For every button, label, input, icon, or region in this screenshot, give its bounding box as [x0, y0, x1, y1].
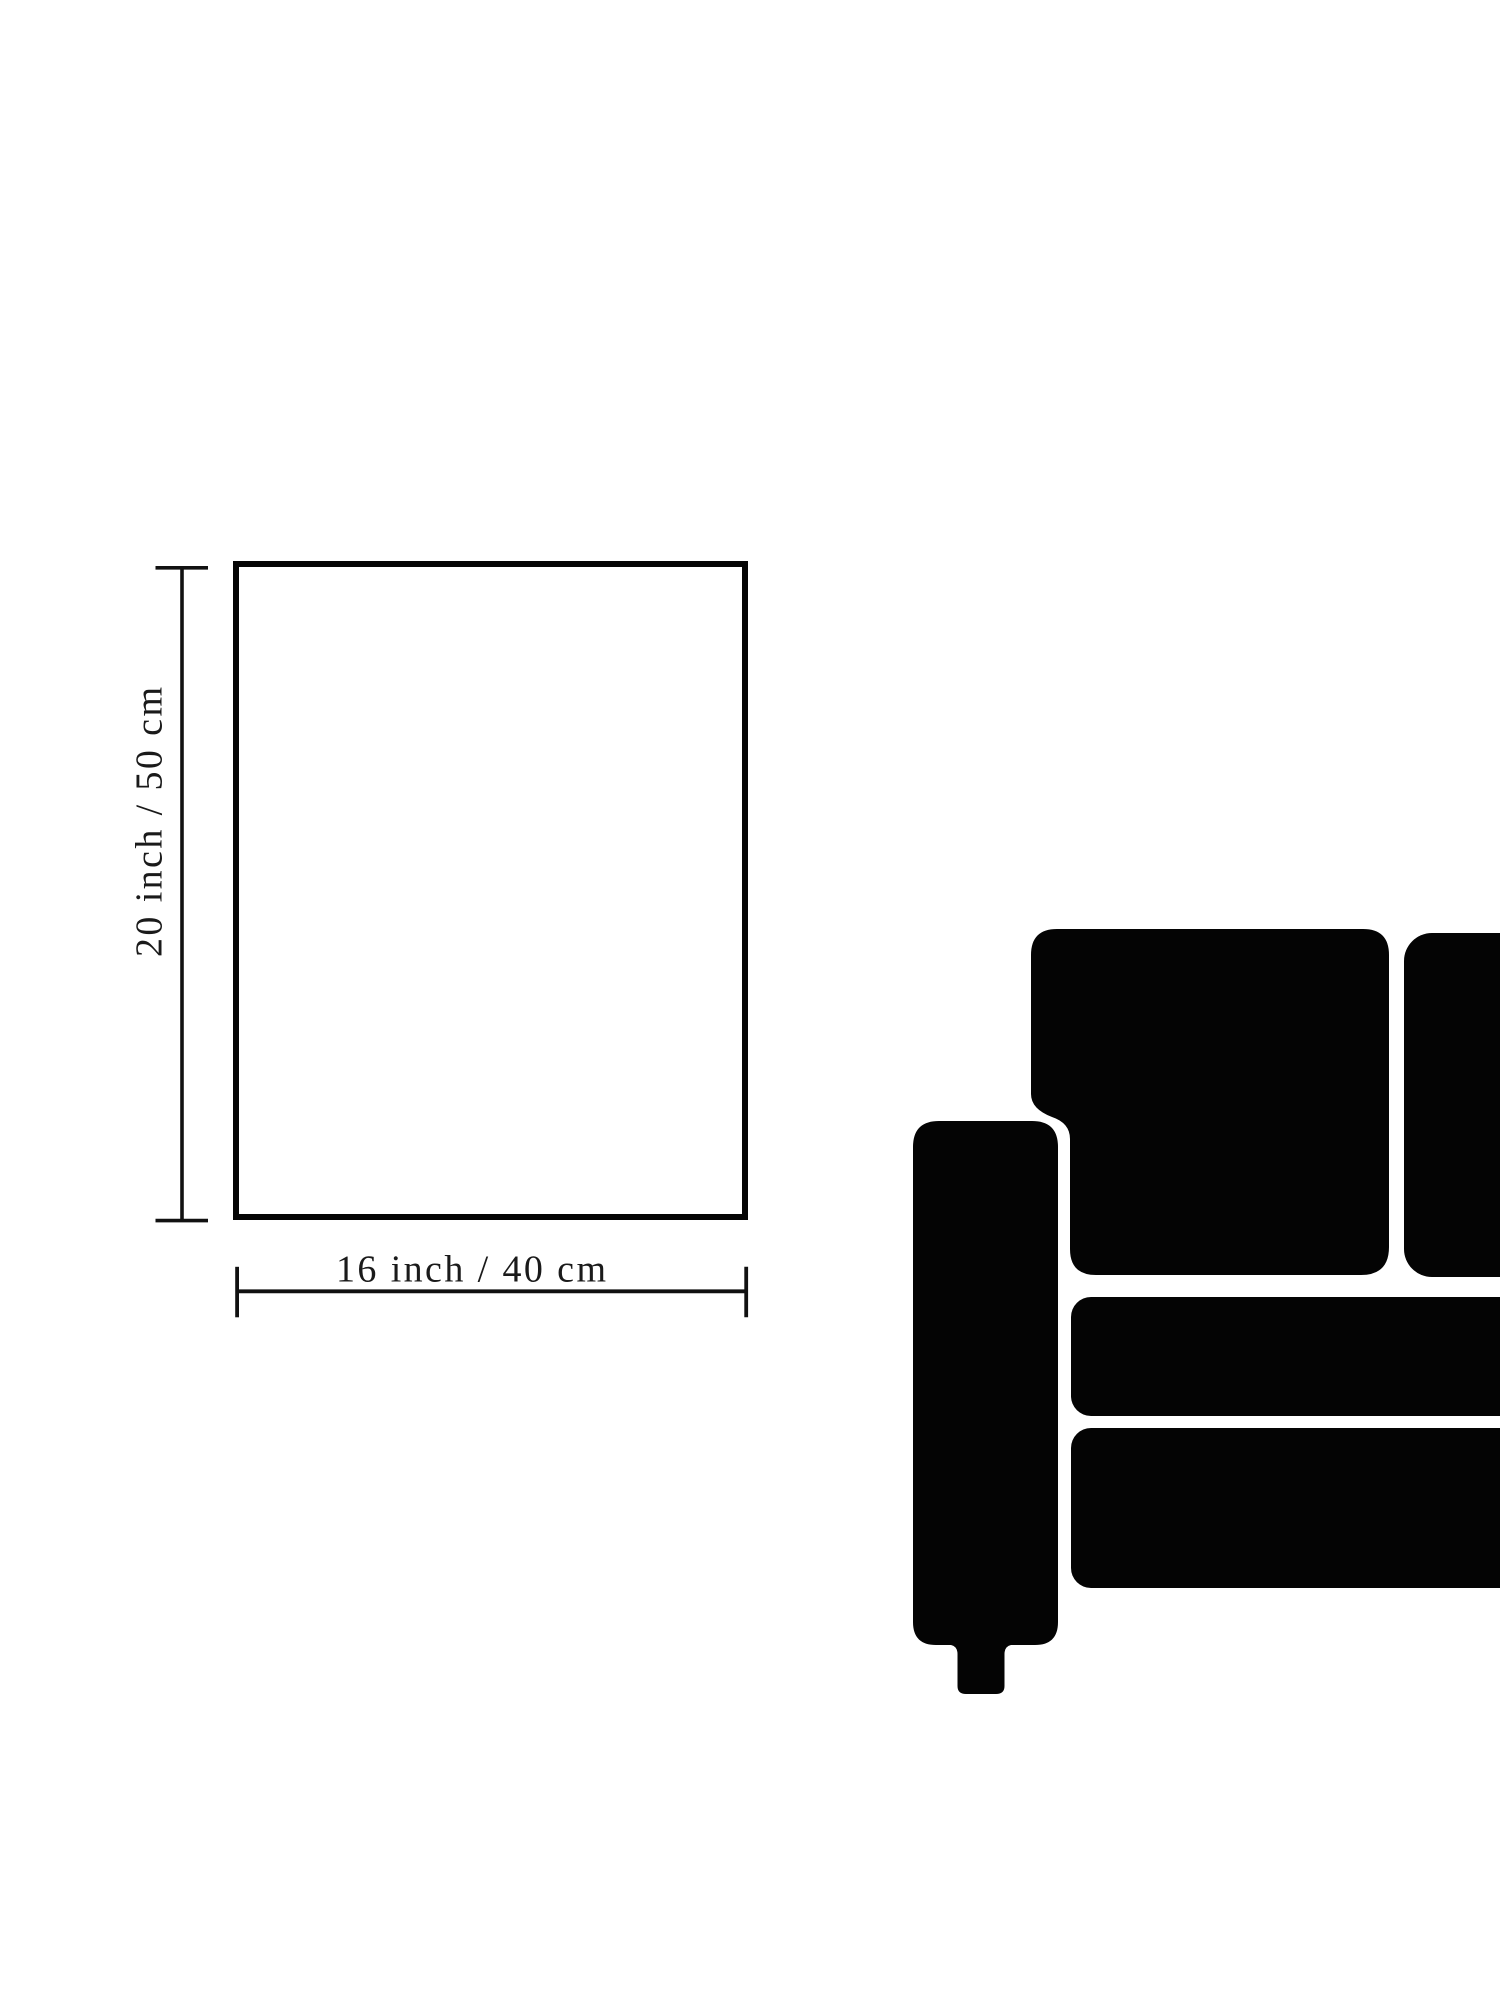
svg-text:20 inch / 50 cm: 20 inch / 50 cm: [129, 685, 171, 957]
svg-text:16 inch / 40 cm: 16 inch / 40 cm: [336, 1249, 608, 1291]
